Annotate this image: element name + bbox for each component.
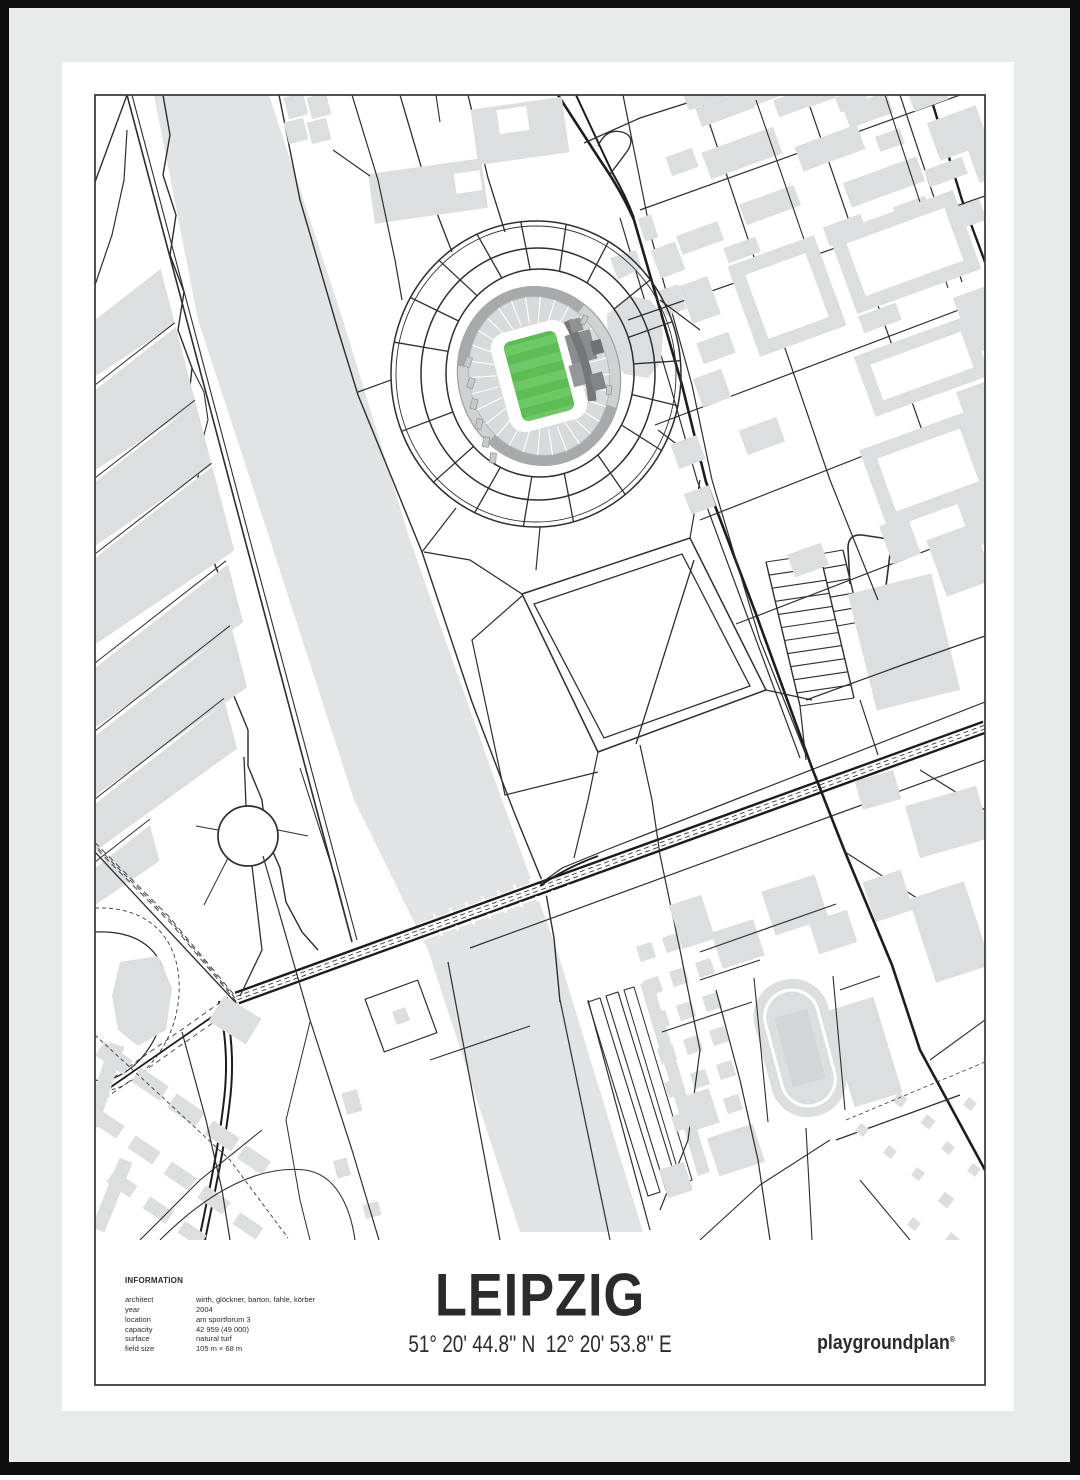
svg-text:INFORMATION: INFORMATION [125,1276,183,1285]
svg-text:field size: field size [125,1344,154,1353]
svg-text:location: location [125,1315,151,1324]
svg-text:51° 20' 44.8'' N 12° 20' 53.8: 51° 20' 44.8'' N 12° 20' 53.8'' E [408,1330,671,1358]
svg-text:surface: surface [125,1334,150,1343]
svg-text:wirth, glöckner, barton, fahle: wirth, glöckner, barton, fahle, körber [195,1295,316,1304]
svg-text:natural turf: natural turf [196,1334,233,1343]
svg-text:year: year [125,1305,140,1314]
svg-text:architect: architect [125,1295,154,1304]
svg-text:2004: 2004 [196,1305,213,1314]
svg-text:42 959 (49 000): 42 959 (49 000) [196,1325,249,1334]
svg-text:am sportforum 3: am sportforum 3 [196,1315,251,1324]
svg-text:105 m × 68 m: 105 m × 68 m [196,1344,242,1353]
svg-text:capacity: capacity [125,1325,153,1334]
svg-text:LEIPZIG: LEIPZIG [435,1261,645,1328]
svg-text:playgroundplan®: playgroundplan® [817,1332,955,1354]
